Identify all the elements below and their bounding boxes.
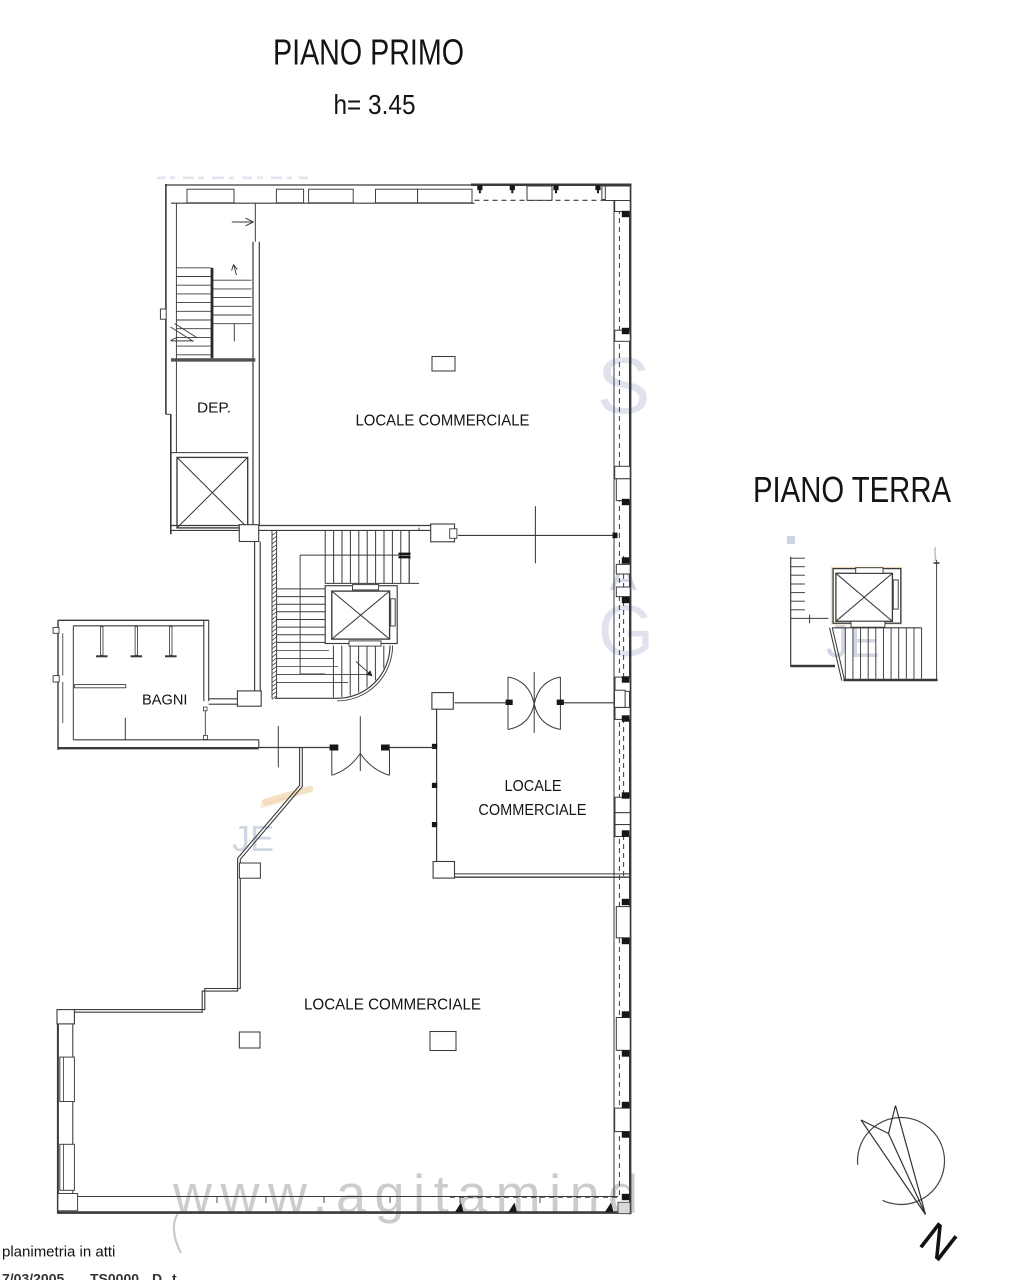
svg-text:JE: JE [232, 818, 274, 859]
svg-text:www.agitamind: www.agitamind [172, 1165, 647, 1225]
svg-text:G: G [598, 592, 654, 672]
svg-text:PIANO PRIMO: PIANO PRIMO [273, 32, 464, 73]
svg-text:planimetria in atti: planimetria in atti [2, 1244, 115, 1261]
svg-text:S: S [597, 341, 650, 430]
svg-text:LOCALE COMMERCIALE: LOCALE COMMERCIALE [356, 413, 530, 430]
svg-text:COMMERCIALE: COMMERCIALE [478, 802, 586, 819]
svg-text:BAGNI: BAGNI [142, 692, 188, 709]
svg-text:LOCALE COMMERCIALE: LOCALE COMMERCIALE [304, 997, 481, 1014]
svg-text:LOCALE: LOCALE [505, 778, 562, 795]
svg-text:DEP.: DEP. [197, 400, 231, 417]
svg-text:D: D [152, 1271, 162, 1280]
svg-text:TS0000: TS0000 [90, 1271, 139, 1280]
svg-text:7/03/2005: 7/03/2005 [2, 1271, 64, 1280]
svg-text:t: t [172, 1271, 177, 1280]
svg-text:h= 3.45: h= 3.45 [334, 89, 416, 120]
svg-text:PIANO TERRA: PIANO TERRA [753, 469, 951, 510]
